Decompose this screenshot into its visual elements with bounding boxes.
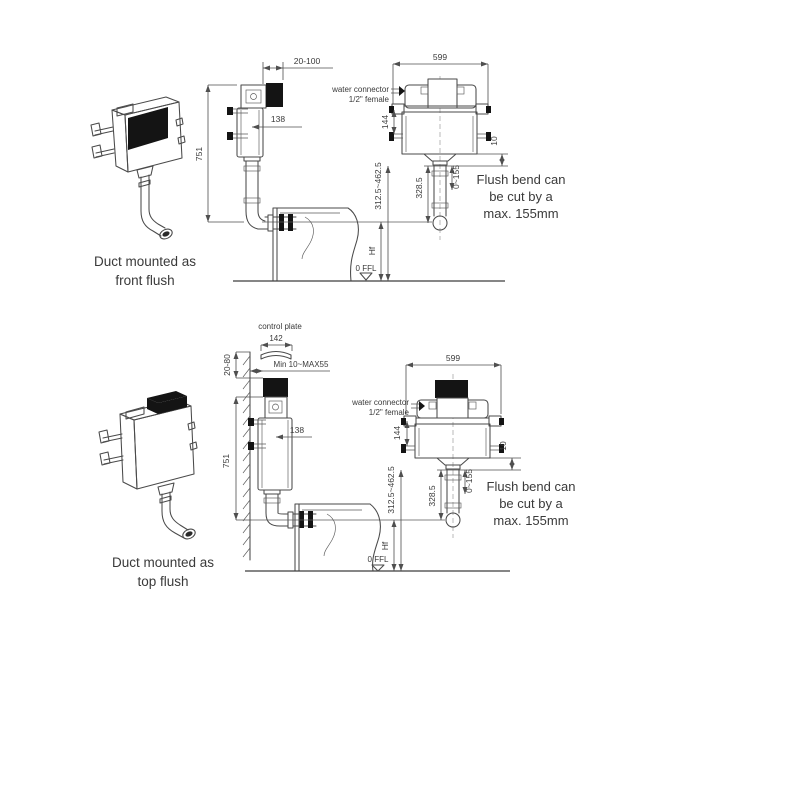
- cistern-front-body: [402, 112, 477, 154]
- left-mounting-brackets: [99, 430, 123, 465]
- top-flush-caption-line1: Duct mounted as: [112, 555, 214, 570]
- water-connector-label-line2: 1/2" female: [349, 95, 390, 104]
- front-flush-diagram: Duct mounted as front flush 20-100 138: [91, 52, 565, 288]
- top-flush-front-view: 599 144 10: [351, 353, 575, 571]
- install-height-dim: 751: [221, 454, 231, 468]
- height-extension-lines: [208, 85, 244, 222]
- note-line2: be cut by a: [489, 189, 553, 204]
- front-flush-caption-line2: front flush: [115, 273, 174, 288]
- flush-bend-note: Flush bend can be cut by a max. 155mm: [477, 172, 566, 221]
- pipe-flange: [299, 511, 304, 528]
- note-line3: max. 155mm: [493, 513, 568, 528]
- bracket-spacing-dim: 144: [392, 426, 402, 440]
- bend-length-dim: 328.5: [427, 485, 437, 507]
- outlet-gap-dim: 10: [489, 136, 499, 146]
- cut-range-dim: 0~155: [451, 165, 461, 189]
- bend-outlet-bore: [162, 230, 171, 237]
- plate-housing: [437, 398, 468, 418]
- ffl-datum-triangle: [360, 273, 372, 280]
- install-height-dim: 751: [194, 147, 204, 161]
- flush-plate-front: [128, 107, 168, 150]
- flush-bend: [162, 509, 188, 538]
- cistern-side-body: [258, 418, 292, 490]
- finish-thickness-dim: Min 10~MAX55: [274, 360, 329, 369]
- flush-valve-unit: [241, 85, 266, 108]
- pipe-flange: [288, 214, 293, 231]
- front-flush-isometric-view: [91, 97, 185, 241]
- flush-height-dim: Hf: [380, 541, 390, 550]
- bend-length-dim: 328.5: [414, 177, 424, 199]
- cistern-top-face: [112, 97, 179, 115]
- water-connector-label-line2: 1/2" female: [369, 408, 410, 417]
- cistern-left-face: [120, 414, 137, 489]
- flush-pipe: [139, 175, 150, 211]
- note-line1: Flush bend can: [477, 172, 566, 187]
- plate-housing: [428, 79, 457, 108]
- pipe-flange: [279, 214, 284, 231]
- outlet-height-range-dim: 312.5~462.5: [373, 162, 383, 210]
- water-connector-label-line1: water connector: [331, 85, 389, 94]
- down-pipe: [246, 161, 258, 211]
- ffl-label: 0 FFL: [356, 264, 377, 273]
- recess-depth-dim: 20-80: [222, 354, 232, 376]
- wall-brackets-side: [248, 418, 266, 450]
- flush-bend-note: Flush bend can be cut by a max. 155mm: [487, 479, 576, 528]
- mounting-rail: [408, 418, 499, 424]
- bend-outlet-bore: [185, 530, 194, 537]
- control-plate-label: control plate: [258, 322, 302, 331]
- toilet-pan-side: [273, 208, 358, 281]
- frame-width-dim: 599: [433, 52, 447, 62]
- cistern-left-face: [112, 110, 128, 172]
- frame-width-dim: 599: [446, 353, 460, 363]
- top-flush-diagram: Duct mounted as top flush control plate …: [99, 322, 575, 589]
- note-line3: max. 155mm: [483, 206, 558, 221]
- cistern-front-body: [415, 424, 490, 458]
- outlet-gap-dim: 10: [498, 441, 508, 451]
- top-flush-isometric-view: [99, 391, 197, 541]
- water-connector-callout: water connector 1/2" female: [351, 398, 425, 417]
- cistern-front-face: [134, 406, 194, 489]
- note-line1: Flush bend can: [487, 479, 576, 494]
- water-connector-callout: water connector 1/2" female: [331, 85, 405, 104]
- pipe-elbow: [246, 211, 265, 229]
- outlet-height-range-dim: 312.5~462.5: [386, 466, 396, 514]
- left-mounting-brackets: [91, 123, 114, 158]
- top-flush-caption-line2: top flush: [137, 574, 188, 589]
- flush-plate-side: [266, 83, 283, 107]
- top-flush-side-view: control plate 142 Min 10~MAX55 20-80: [221, 322, 510, 571]
- ffl-datum-triangle: [372, 565, 384, 571]
- ffl-label: 0 FFL: [368, 555, 389, 564]
- outlet-stub: [244, 157, 260, 161]
- control-plate-width-dim: 142: [269, 334, 283, 343]
- pipe-offset-dim: 138: [271, 114, 285, 124]
- bracket-spacing-dim: 144: [380, 115, 390, 129]
- drawing-page: Duct mounted as front flush 20-100 138: [0, 0, 800, 800]
- flush-plate-side: [263, 378, 288, 397]
- pipe-offset-dim: 138: [290, 425, 304, 435]
- flush-pipe: [160, 492, 171, 511]
- outlet-stub: [264, 490, 280, 494]
- wall-hatching: [243, 356, 250, 557]
- technical-drawing: Duct mounted as front flush 20-100 138: [0, 0, 800, 800]
- outlet-socket: [137, 166, 153, 178]
- pipe-elbow: [266, 513, 284, 526]
- plate-depth-extension-lines: [263, 62, 283, 84]
- control-plate-profile: [261, 352, 291, 360]
- note-line2: be cut by a: [499, 496, 563, 511]
- flush-valve-unit: [265, 397, 287, 418]
- front-flush-front-view: 599 144 10: [331, 52, 565, 281]
- outlet-socket: [158, 483, 174, 495]
- pipe-flange: [308, 511, 313, 528]
- water-connector-label-line1: water connector: [351, 398, 409, 407]
- front-flush-caption-line1: Duct mounted as: [94, 254, 196, 269]
- water-connector-arrow: [399, 86, 405, 96]
- flush-plate-top: [435, 380, 468, 398]
- flush-height-dim: Hf: [367, 246, 377, 255]
- plate-depth-dim: 20-100: [294, 56, 321, 66]
- down-pipe: [266, 494, 278, 513]
- cut-range-dim: 0~155: [464, 469, 474, 493]
- lower-brackets: [401, 444, 504, 453]
